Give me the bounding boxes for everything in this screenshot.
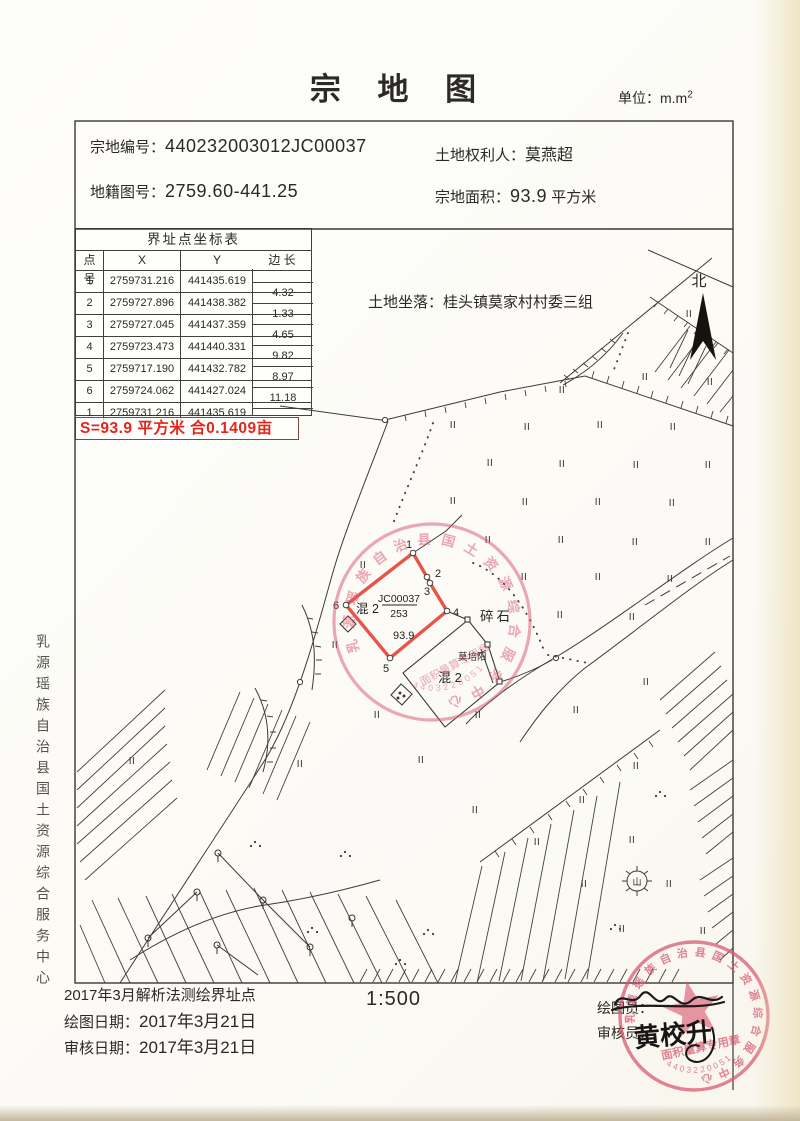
vertex-label-4: 4 (453, 607, 459, 619)
cell-y: 441427.024 (181, 381, 253, 402)
dot-cluster-symbols (250, 791, 666, 965)
location-label: 土地坐落： (368, 294, 443, 311)
svg-text:II: II (129, 756, 136, 767)
parcel-number-value: 440232003012JC00037 (165, 136, 367, 156)
parcel-denominator: 253 (390, 608, 408, 620)
review-date-value: 2017年3月21日 (139, 1038, 256, 1057)
unit-superscript: 2 (687, 89, 693, 100)
area-summary: S=93.9 平方米 合0.1409亩 (75, 417, 299, 440)
area-row: 宗地面积：93.9 平方米 (435, 186, 596, 207)
parcel-structure: 混 2 (356, 602, 379, 616)
svg-text:II: II (487, 458, 494, 469)
svg-text:II: II (522, 497, 529, 508)
svg-text:II: II (666, 879, 673, 890)
svg-text:II: II (559, 459, 566, 470)
location-row: 土地坐落：桂头镇莫家村村委三组 (368, 291, 593, 312)
edge-length: 4.32 (253, 283, 313, 304)
svg-text:II: II (581, 879, 588, 890)
parcel-number-row: 宗地编号：440232003012JC00037 (90, 136, 367, 157)
edge-length: 9.82 (253, 346, 313, 367)
bottom-stamp-serial: 4403220051 (663, 1045, 736, 1082)
svg-text:II: II (597, 420, 604, 431)
cell-x: 2759717.190 (104, 359, 181, 380)
col-header-y: Y (181, 251, 253, 270)
bottom-stamp-inner-text: 面积量算专用章 (660, 1032, 742, 1063)
svg-text:II: II (595, 497, 602, 508)
cell-pt: 2 (76, 293, 104, 314)
sheet-number-value: 2759.60-441.25 (165, 181, 298, 201)
cell-pt: 4 (76, 337, 104, 358)
north-label: 北 (691, 273, 706, 290)
edge-length: 8.97 (253, 367, 313, 388)
map-scale: 1:500 (366, 988, 421, 1011)
location-value: 桂头镇莫家村村委三组 (443, 294, 593, 311)
stamp-star-icon (659, 975, 726, 1040)
svg-text:II: II (686, 309, 693, 320)
organization-name: 乳源瑶族自治县国土资源综合服务中心 (33, 634, 53, 994)
hill-symbol (622, 866, 652, 896)
scan-edge-bottom (0, 1105, 800, 1121)
cell-pt: 1 (76, 271, 104, 292)
draw-date-row: 绘图日期：2017年3月21日 (64, 1007, 256, 1032)
map-labels: 1 2 3 4 5 6 JC00037 253 混 2 93.9 碎石 莫培阳 … (333, 273, 707, 887)
col-header-x: X (104, 251, 181, 270)
unit-text: 单位：m.m (618, 90, 687, 106)
neighbor-owner: 莫培阳 (458, 651, 487, 663)
reviewer-label: 审核员： (597, 1023, 653, 1043)
cell-y: 441437.359 (181, 315, 253, 336)
cell-y: 441432.782 (181, 359, 253, 380)
svg-text:II: II (669, 498, 676, 509)
svg-text:乳源瑶族自治县国土资源综合服务中心: 乳源瑶族自治县国土资源综合服务中心 (309, 498, 556, 745)
cell-x: 2759727.045 (104, 315, 181, 336)
vertex-label-1: 1 (406, 539, 412, 551)
svg-text:II: II (559, 385, 566, 396)
svg-text:II: II (557, 610, 564, 621)
center-stamp-serial: 4403220051 (408, 647, 489, 708)
svg-text:II: II (629, 612, 636, 623)
cell-y: 441440.331 (181, 337, 253, 358)
cell-pt: 5 (76, 359, 104, 380)
svg-text:II: II (643, 677, 650, 688)
cell-y: 441438.382 (181, 293, 253, 314)
drafter-label: 绘图员： (597, 998, 653, 1018)
map-drawing: IIIIIIIIIIIIIIIIIIIIIIIIIIIIIIIIIIIIIIII… (0, 0, 800, 1121)
holder-label: 土地权利人： (435, 147, 525, 164)
review-date-label: 审核日期： (64, 1040, 139, 1057)
cell-pt: 3 (76, 315, 104, 336)
holder-row: 土地权利人：莫燕超 (435, 141, 573, 165)
svg-text:II: II (360, 560, 367, 571)
parcel-number-label: 宗地编号： (90, 139, 165, 156)
dotted-boundaries (392, 333, 628, 663)
svg-text:II: II (573, 705, 580, 716)
svg-text:II: II (667, 574, 674, 585)
review-date-row: 审核日期：2017年3月21日 (64, 1033, 256, 1058)
edge-length-column: 4.32 1.33 4.65 9.82 8.97 11.18 (252, 269, 313, 416)
cell-x: 2759724.062 (104, 381, 181, 402)
col-header-point: 点 号 (76, 251, 104, 270)
svg-text:II: II (475, 710, 482, 721)
gravel-label: 碎石 (480, 609, 513, 624)
vertex-label-3: 3 (424, 586, 430, 598)
cell-y: 441435.619 (181, 271, 253, 292)
reviewer-signature-flourish (686, 1028, 714, 1062)
svg-text:II: II (374, 710, 381, 721)
svg-text:II: II (297, 759, 304, 770)
vertex-label-5: 5 (383, 663, 389, 675)
svg-text:II: II (629, 835, 636, 846)
svg-text:II: II (450, 420, 457, 431)
draw-date-value: 2017年3月21日 (139, 1012, 256, 1031)
svg-text:II: II (633, 761, 640, 772)
cell-x: 2759723.473 (104, 337, 181, 358)
parcel-area: 93.9 (393, 630, 414, 642)
table-header-row: 点 号 X Y 边 长 (76, 251, 311, 271)
svg-text:II: II (472, 805, 479, 816)
hill-label: 山 (632, 877, 641, 887)
pole-symbols (145, 850, 355, 956)
center-stamp-ring-text: 乳源瑶族自治县国土资源综合服务中心 (309, 498, 556, 745)
col-header-length: 边 长 (253, 251, 311, 270)
sheet-number-row: 地籍图号：2759.60-441.25 (90, 181, 298, 202)
svg-text:II: II (524, 422, 531, 433)
svg-text:II: II (534, 837, 541, 848)
parcel-map-sheet: 宗 地 图 单位：m.m2 宗地编号：440232003012JC00037 土… (0, 0, 800, 1121)
svg-text:II: II (642, 372, 649, 383)
svg-text:II: II (450, 496, 457, 507)
svg-text:II: II (619, 924, 626, 935)
edge-length: 1.33 (253, 304, 313, 325)
svg-text:II: II (558, 535, 565, 546)
sheet-number-label: 地籍图号： (90, 184, 165, 201)
draw-date-label: 绘图日期： (64, 1014, 139, 1031)
svg-text:II: II (705, 460, 712, 471)
svg-text:II: II (705, 537, 712, 548)
edge-length: 4.65 (253, 325, 313, 346)
area-value: 93.9 (510, 186, 547, 206)
svg-text:II: II (633, 460, 640, 471)
svg-text:II: II (595, 572, 602, 583)
center-stamp-inner-text: 面积量算专用章 (417, 640, 492, 689)
svg-text:II: II (700, 926, 707, 937)
scan-edge-right (754, 0, 800, 1121)
parcel-code: JC00037 (378, 593, 420, 605)
area-label: 宗地面积： (435, 189, 510, 206)
cell-x: 2759731.216 (104, 271, 181, 292)
svg-text:II: II (632, 537, 639, 548)
vertex-label-2: 2 (435, 568, 441, 580)
svg-text:II: II (485, 535, 492, 546)
north-arrow-icon (690, 293, 716, 360)
svg-text:II: II (579, 795, 586, 806)
vertex-label-6: 6 (333, 600, 339, 612)
edge-length: 11.18 (253, 388, 313, 409)
svg-text:4403220051: 4403220051 (663, 1045, 736, 1082)
svg-text:II: II (670, 422, 677, 433)
neighbor-structure: 混 2 (438, 670, 462, 685)
svg-text:4403220051: 4403220051 (408, 647, 489, 708)
table-title: 界址点坐标表 (76, 229, 311, 251)
svg-text:II: II (418, 755, 425, 766)
method-note: 2017年3月解析法测绘界址点 (64, 984, 256, 1005)
cell-x: 2759727.896 (104, 293, 181, 314)
cell-pt: 6 (76, 381, 104, 402)
area-unit: 平方米 (551, 189, 596, 206)
parcel-polygon (343, 550, 450, 661)
svg-text:II: II (707, 377, 714, 388)
holder-value: 莫燕超 (525, 147, 573, 164)
boundary-point-table: 界址点坐标表 点 号 X Y 边 长 12759731.216441435.61… (75, 228, 312, 416)
neighbor-buildings (340, 611, 502, 727)
svg-text:II: II (332, 640, 339, 651)
svg-text:II: II (521, 572, 528, 583)
unit-label: 单位：m.m2 (618, 88, 693, 108)
center-stamp: 乳源瑶族自治县国土资源综合服务中心 面积量算专用章 4403220051 (299, 489, 564, 754)
